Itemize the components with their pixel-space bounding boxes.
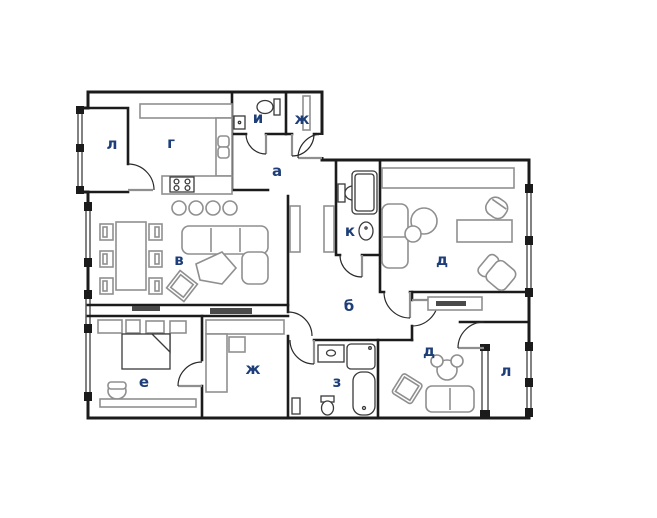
sofa-corner bbox=[242, 252, 268, 284]
bar-stool bbox=[206, 201, 220, 215]
floor-plan-page: л г и ж а к в б д е ж з д л bbox=[0, 0, 657, 518]
pillow bbox=[98, 320, 122, 333]
room-label-bedroom-top-right: д bbox=[436, 251, 448, 269]
room-label-bathroom-main: к bbox=[345, 222, 355, 240]
pillow bbox=[126, 320, 140, 333]
kitchen-sink bbox=[218, 147, 229, 158]
toilet-tank bbox=[274, 99, 280, 115]
room-label-bedroom-left: е bbox=[139, 373, 149, 391]
pillow bbox=[146, 321, 164, 333]
toilet-tank bbox=[338, 184, 345, 202]
floor-plan-drawing: л г и ж а к в б д е ж з д л bbox=[0, 0, 657, 518]
room-label-wc: и bbox=[253, 109, 264, 127]
room-label-corridor: б bbox=[344, 297, 354, 315]
sofa-small bbox=[382, 204, 408, 268]
room-label-dressing: ж bbox=[246, 360, 261, 378]
room-label-loggia-bottom-right: л bbox=[501, 362, 512, 380]
stove bbox=[170, 177, 194, 192]
room-label-loggia-top-left: л bbox=[107, 135, 118, 153]
wardrobe bbox=[324, 206, 334, 252]
room-label-bedroom-bottom-right: д bbox=[423, 342, 435, 360]
kitchen-counter-top bbox=[140, 104, 232, 118]
room-label-living: в bbox=[174, 251, 184, 269]
stool bbox=[229, 337, 245, 352]
bar-stool bbox=[189, 201, 203, 215]
wardrobe bbox=[206, 334, 227, 392]
cabinet bbox=[292, 398, 300, 414]
pouf bbox=[451, 355, 463, 367]
wardrobe-long bbox=[382, 168, 514, 188]
wardrobe bbox=[206, 320, 284, 334]
radiator bbox=[132, 306, 160, 311]
bar-stool bbox=[223, 201, 237, 215]
sofa bbox=[182, 226, 268, 254]
dresser bbox=[100, 399, 196, 407]
toilet-bowl bbox=[322, 401, 334, 415]
desk bbox=[457, 220, 512, 242]
radiator bbox=[210, 308, 252, 314]
room-label-storage-top: ж bbox=[295, 110, 310, 128]
pouf bbox=[405, 226, 421, 242]
kitchen-sink bbox=[218, 136, 229, 147]
room-label-bathroom-second: з bbox=[333, 373, 342, 391]
entrance-opening bbox=[319, 135, 325, 157]
bar-stool bbox=[172, 201, 186, 215]
washbasin bbox=[359, 222, 373, 240]
pillow bbox=[170, 321, 186, 333]
room-label-kitchen: г bbox=[167, 134, 175, 152]
wardrobe bbox=[290, 206, 300, 252]
dining-table bbox=[116, 222, 146, 290]
room-label-hallway: а bbox=[272, 162, 282, 180]
radiator bbox=[436, 301, 466, 306]
